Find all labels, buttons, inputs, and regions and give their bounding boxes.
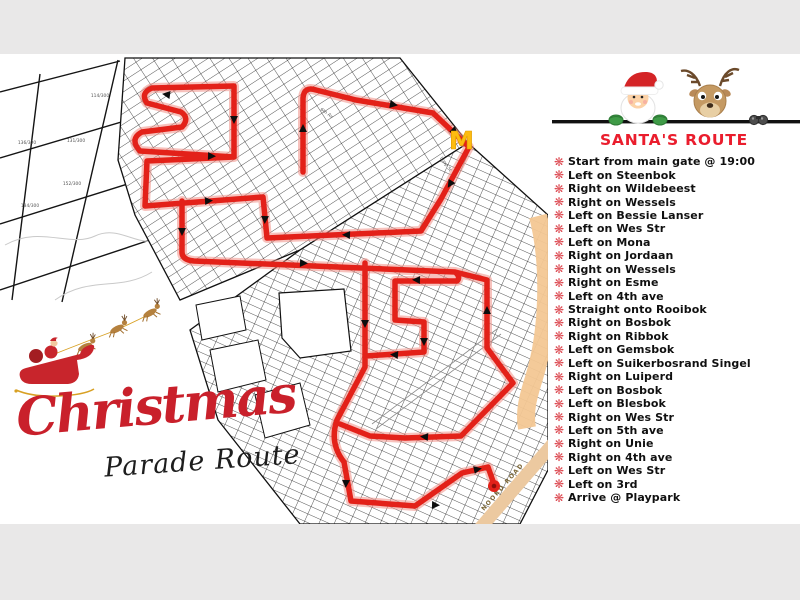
route-list: ❋ Start from main gate @ 19:00 ❋ Left on…	[554, 155, 800, 504]
route-step-label: Right on Ribbok	[568, 330, 669, 343]
snowflake-bullet-icon: ❋	[554, 411, 568, 423]
snowflake-bullet-icon: ❋	[554, 277, 568, 289]
panel-title: SANTA'S ROUTE	[548, 131, 800, 149]
route-step: ❋ Left on Mona	[554, 236, 800, 249]
route-step-label: Left on Suikerbosrand Singel	[568, 357, 751, 370]
snowflake-bullet-icon: ❋	[554, 344, 568, 356]
route-step-label: Left on 5th ave	[568, 424, 664, 437]
snowflake-bullet-icon: ❋	[554, 317, 568, 329]
contour-lines	[5, 233, 160, 300]
snowflake-bullet-icon: ❋	[554, 169, 568, 181]
snowflake-bullet-icon: ❋	[554, 223, 568, 235]
route-step-label: Left on Blesbok	[568, 397, 666, 410]
route-step: ❋ Right on Esme	[554, 276, 800, 289]
route-step: ❋ Right on Jordaan	[554, 249, 800, 262]
route-step-label: Left on Gemsbok	[568, 343, 674, 356]
route-step-label: Right on Wessels	[568, 263, 676, 276]
snowflake-bullet-icon: ❋	[554, 183, 568, 195]
route-step: ❋ Right on Wessels	[554, 195, 800, 208]
route-step: ❋ Left on 5th ave	[554, 424, 800, 437]
route-step-label: Straight onto Rooibok	[568, 303, 707, 316]
route-step-label: Left on 4th ave	[568, 290, 664, 303]
santa-icon	[609, 72, 667, 125]
route-step-label: Left on Bosbok	[568, 384, 662, 397]
snowflake-bullet-icon: ❋	[554, 330, 568, 342]
route-step: ❋ Left on Bessie Lanser	[554, 209, 800, 222]
route-step: ❋ Left on Bosbok	[554, 383, 800, 396]
route-step: ❋ Right on Wessels	[554, 263, 800, 276]
route-step: ❋ Arrive @ Playpark	[554, 491, 800, 504]
snowflake-bullet-icon: ❋	[554, 424, 568, 436]
letterbox-top	[0, 0, 800, 54]
snowflake-bullet-icon: ❋	[554, 438, 568, 450]
snowflake-bullet-icon: ❋	[554, 263, 568, 275]
snowflake-bullet-icon: ❋	[554, 156, 568, 168]
snowflake-bullet-icon: ❋	[554, 492, 568, 504]
route-step: ❋ Right on Wes Str	[554, 410, 800, 423]
snowflake-bullet-icon: ❋	[554, 478, 568, 490]
snowflake-bullet-icon: ❋	[554, 250, 568, 262]
route-step: ❋ Right on Wildebeest	[554, 182, 800, 195]
route-step: ❋ Right on Luiperd	[554, 370, 800, 383]
plot-label: 136/300	[18, 140, 36, 146]
route-step-label: Left on Wes Str	[568, 464, 665, 477]
route-step-label: Right on Esme	[568, 276, 659, 289]
route-step: ❋ Left on Wes Str	[554, 464, 800, 477]
route-step: ❋ Start from main gate @ 19:00	[554, 155, 800, 168]
route-step-label: Right on Wildebeest	[568, 182, 696, 195]
route-step-label: Right on Wes Str	[568, 411, 674, 424]
route-step: ❋ Left on Suikerbosrand Singel	[554, 357, 800, 370]
route-step: ❋ Right on Unie	[554, 437, 800, 450]
route-step-label: Right on 4th ave	[568, 451, 672, 464]
route-step: ❋ Left on Steenbok	[554, 168, 800, 181]
mcdonalds-icon: M	[449, 126, 474, 155]
snowflake-bullet-icon: ❋	[554, 384, 568, 396]
farm-plot-labels: 114/300 136/300 131/300 152/300 134/300	[18, 93, 109, 209]
snowflake-bullet-icon: ❋	[554, 357, 568, 369]
route-step: ❋ Right on 4th ave	[554, 451, 800, 464]
route-step-label: Left on Mona	[568, 236, 651, 249]
route-step: ❋ Right on Ribbok	[554, 330, 800, 343]
route-step-label: Right on Jordaan	[568, 249, 673, 262]
route-step-label: Right on Unie	[568, 437, 654, 450]
route-step-label: Right on Wessels	[568, 196, 676, 209]
route-step: ❋ Left on 4th ave	[554, 289, 800, 302]
route-step-label: Left on Bessie Lanser	[568, 209, 703, 222]
route-step: ❋ Left on Wes Str	[554, 222, 800, 235]
plot-label: 114/300	[91, 93, 109, 99]
route-step-label: Right on Luiperd	[568, 370, 673, 383]
panel-header-art	[548, 58, 800, 130]
playpark-marker-icon	[488, 480, 500, 492]
plot-label: 152/300	[63, 181, 81, 187]
route-step-label: Arrive @ Playpark	[568, 491, 680, 504]
snowflake-bullet-icon: ❋	[554, 304, 568, 316]
snowflake-bullet-icon: ❋	[554, 398, 568, 410]
route-step-label: Left on Wes Str	[568, 222, 665, 235]
route-step-label: Start from main gate @ 19:00	[568, 155, 755, 168]
reindeer-icon	[681, 69, 739, 117]
route-step: ❋ Left on Blesbok	[554, 397, 800, 410]
snowflake-bullet-icon: ❋	[554, 371, 568, 383]
snowflake-bullet-icon: ❋	[554, 209, 568, 221]
parade-flyer: 114/300 136/300 131/300 152/300 134/300 …	[0, 0, 800, 600]
letterbox-bottom	[0, 524, 800, 600]
snowflake-bullet-icon: ❋	[554, 451, 568, 463]
plot-label: 134/300	[21, 203, 39, 209]
route-step-label: Right on Bosbok	[568, 316, 671, 329]
snowflake-bullet-icon: ❋	[554, 236, 568, 248]
route-step-label: Left on Steenbok	[568, 169, 676, 182]
route-step: ❋ Left on Gemsbok	[554, 343, 800, 356]
snowflake-bullet-icon: ❋	[554, 196, 568, 208]
route-step: ❋ Straight onto Rooibok	[554, 303, 800, 316]
snowflake-bullet-icon: ❋	[554, 465, 568, 477]
snowflake-bullet-icon: ❋	[554, 290, 568, 302]
route-step: ❋ Right on Bosbok	[554, 316, 800, 329]
route-step-label: Left on 3rd	[568, 478, 638, 491]
plot-label: 131/300	[67, 138, 85, 144]
route-step: ❋ Left on 3rd	[554, 478, 800, 491]
